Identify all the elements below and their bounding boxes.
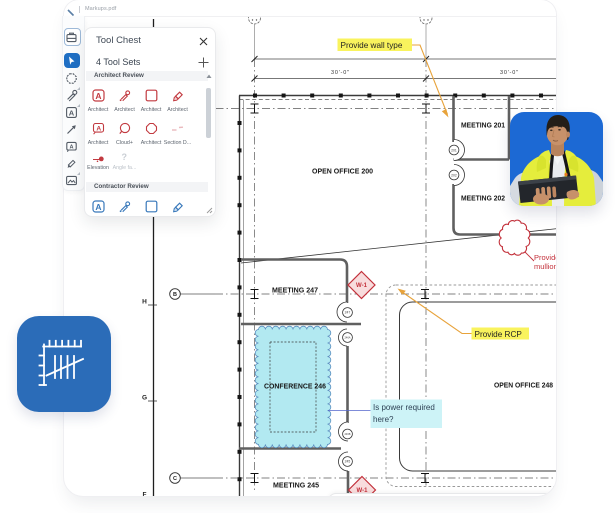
svg-text:MEETING 245: MEETING 245 <box>273 483 319 490</box>
svg-text:A: A <box>69 108 75 117</box>
svg-text:CONFERENCE 246: CONFERENCE 246 <box>264 384 326 391</box>
svg-text:MEETING 247: MEETING 247 <box>272 288 318 295</box>
svg-text:A: A <box>95 90 101 100</box>
svg-text:A: A <box>95 201 101 211</box>
svg-text:OPEN OFFICE 248: OPEN OFFICE 248 <box>494 383 553 390</box>
svg-text:C: C <box>173 476 177 482</box>
svg-text:245: 245 <box>345 460 351 464</box>
svg-text:Provide: Provide <box>534 253 557 262</box>
svg-text:Is power required: Is power required <box>373 403 435 412</box>
svg-text:MEETING 201: MEETING 201 <box>461 123 505 130</box>
svg-text:201: 201 <box>451 148 457 152</box>
svg-text:30'-0": 30'-0" <box>500 70 518 76</box>
svg-text:Provide RCP: Provide RCP <box>475 330 523 339</box>
svg-text:mullion: mullion <box>534 262 557 271</box>
svg-text:246A: 246A <box>344 336 350 340</box>
svg-text:247: 247 <box>345 311 351 315</box>
svg-text:here?: here? <box>373 415 394 424</box>
svg-text:B: B <box>173 292 177 298</box>
svg-text:MEETING 202: MEETING 202 <box>461 196 505 203</box>
svg-text:Provide wall type: Provide wall type <box>341 41 403 50</box>
svg-text:246B: 246B <box>344 432 350 436</box>
svg-text:G: G <box>142 395 147 402</box>
svg-text:202: 202 <box>451 173 457 177</box>
svg-text:OPEN OFFICE 200: OPEN OFFICE 200 <box>312 169 373 176</box>
svg-text:W-1: W-1 <box>356 283 368 289</box>
svg-text:A: A <box>96 125 101 132</box>
svg-text:F: F <box>143 492 147 498</box>
svg-text:H: H <box>142 299 147 306</box>
svg-text:A: A <box>69 144 73 150</box>
svg-text:30'-0": 30'-0" <box>331 70 349 76</box>
